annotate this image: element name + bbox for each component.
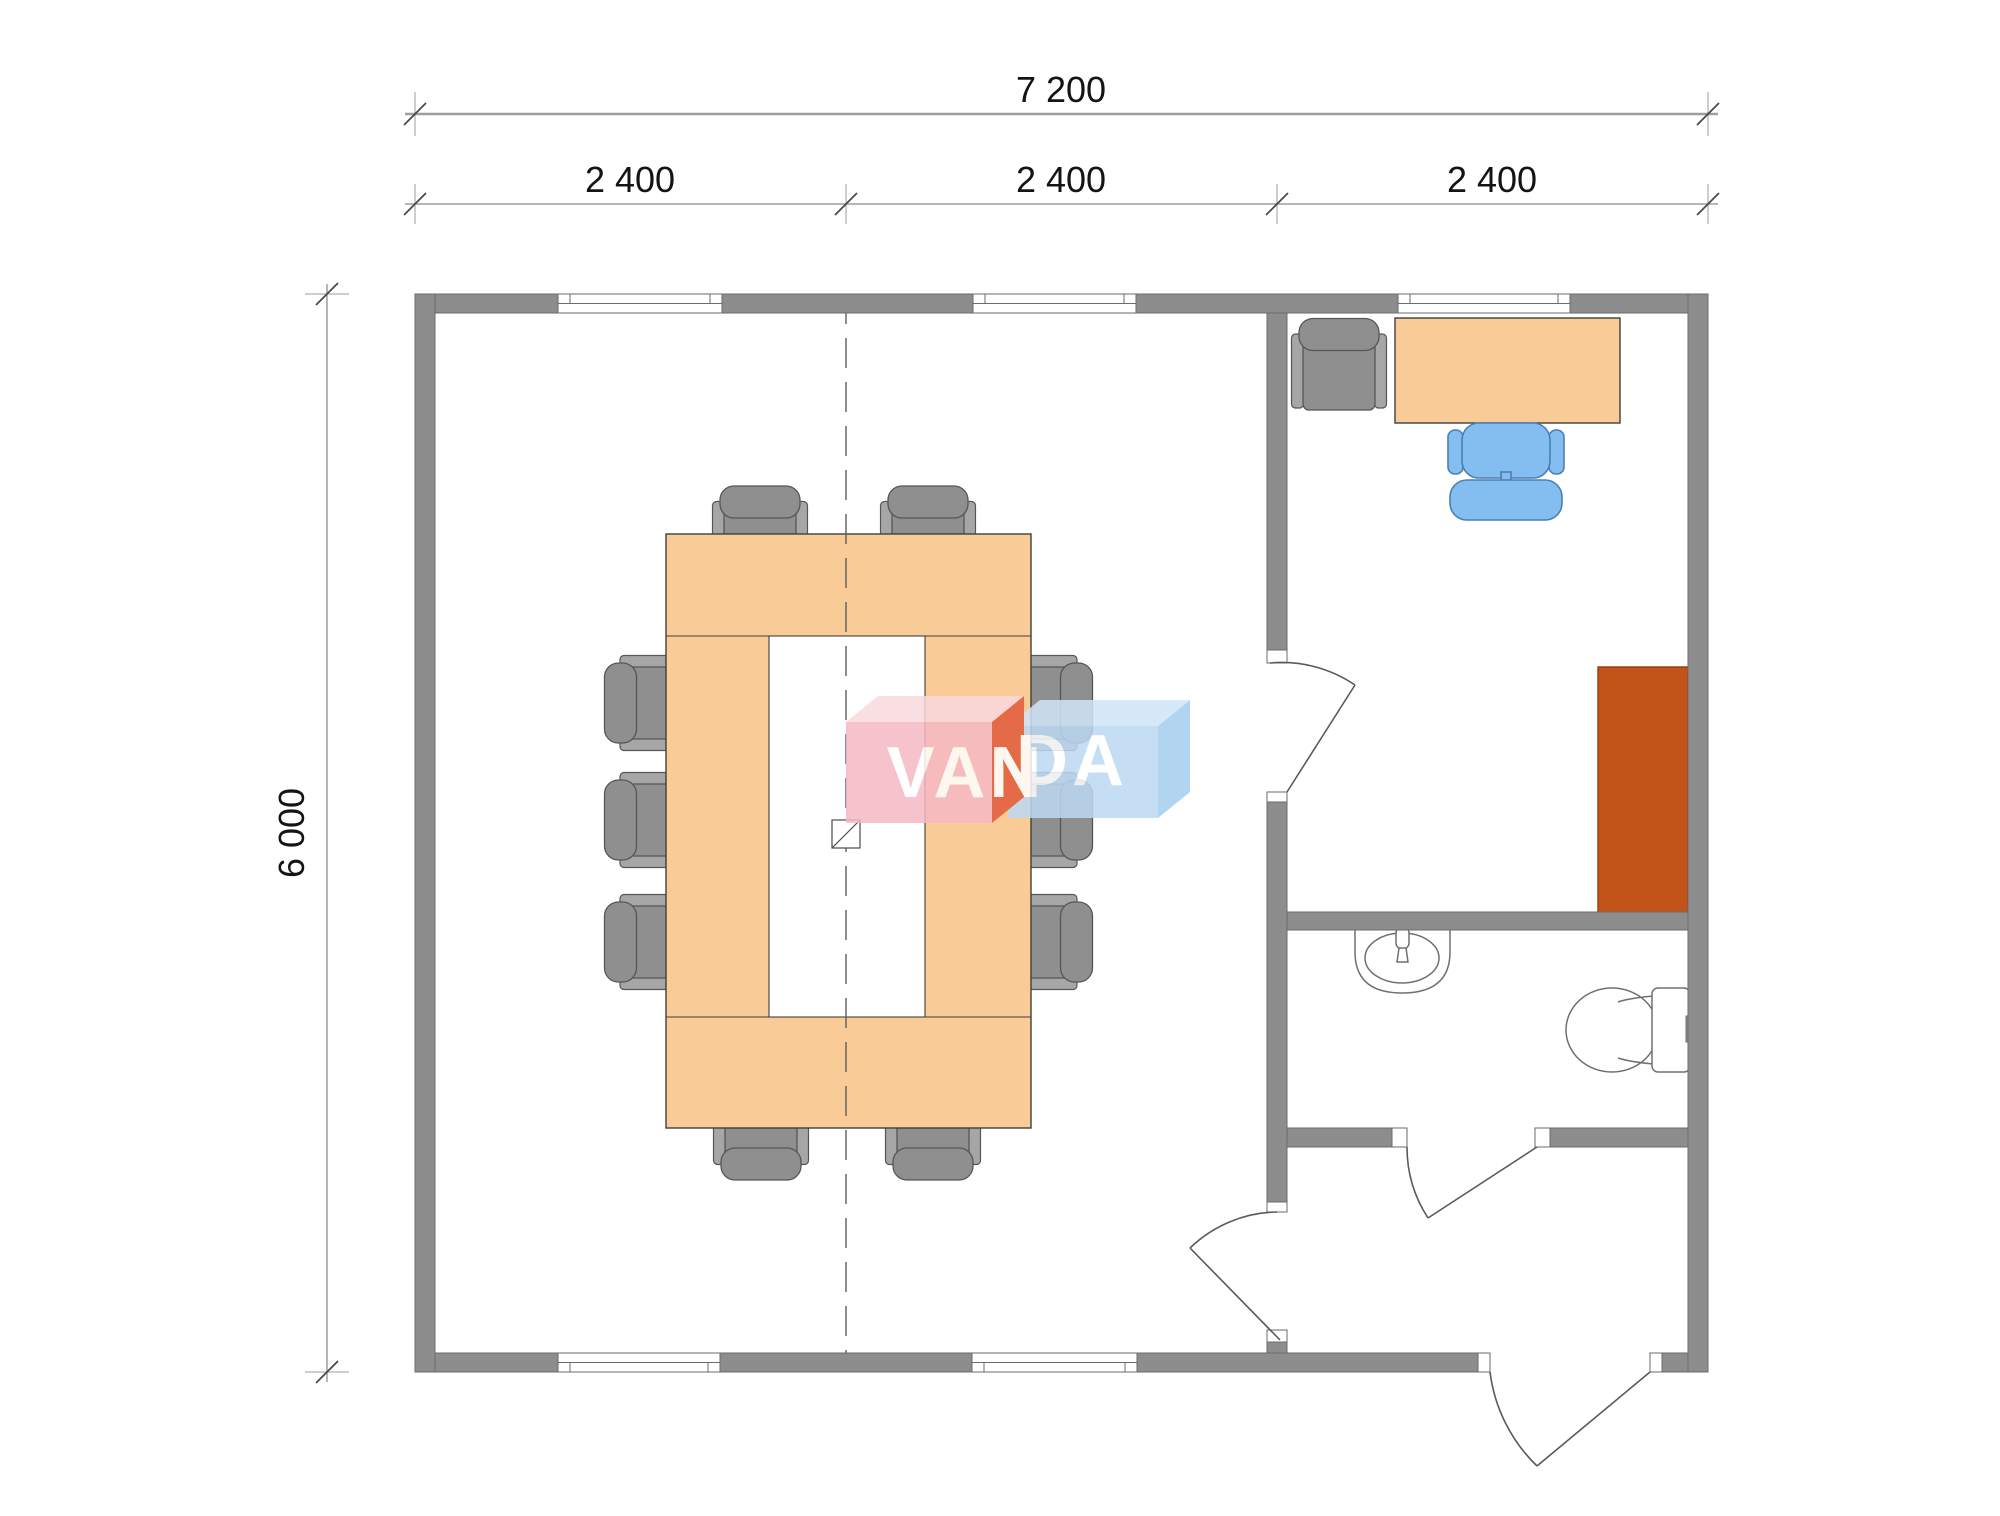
hall-door bbox=[1190, 1212, 1280, 1340]
dimension-top-modules: 2 400 2 400 2 400 bbox=[404, 159, 1719, 224]
dimension-top-overall: 7 200 bbox=[404, 69, 1719, 136]
dimension-label-overall-width: 7 200 bbox=[1016, 69, 1106, 110]
dimension-label-overall-depth: 6 000 bbox=[271, 788, 312, 878]
cabinet bbox=[1598, 667, 1688, 913]
dimension-label-module-1: 2 400 bbox=[585, 159, 675, 200]
office-desk bbox=[1395, 318, 1620, 423]
window bbox=[972, 1353, 1137, 1372]
vanda-watermark: VAN DA bbox=[846, 696, 1190, 823]
window bbox=[558, 1353, 720, 1372]
entrance-door bbox=[1490, 1372, 1650, 1466]
floor-drain-symbol bbox=[832, 820, 860, 848]
office-door bbox=[1270, 662, 1355, 792]
desk-chair bbox=[1448, 423, 1564, 520]
dimension-label-module-2: 2 400 bbox=[1016, 159, 1106, 200]
toilet bbox=[1566, 988, 1694, 1072]
floor-plan-drawing: 7 200 2 400 2 400 2 400 6 000 bbox=[0, 0, 2000, 1516]
dimension-left-overall: 6 000 bbox=[271, 283, 349, 1383]
window bbox=[973, 294, 1136, 313]
sink bbox=[1355, 923, 1450, 993]
office-corner-chair bbox=[1292, 319, 1387, 411]
window bbox=[558, 294, 722, 313]
dimension-label-module-3: 2 400 bbox=[1447, 159, 1537, 200]
vanda-text-da: DA bbox=[1016, 721, 1128, 801]
window bbox=[1398, 294, 1570, 313]
bathroom-door bbox=[1407, 1147, 1537, 1218]
floor-plan-page: 7 200 2 400 2 400 2 400 6 000 bbox=[0, 0, 2000, 1516]
